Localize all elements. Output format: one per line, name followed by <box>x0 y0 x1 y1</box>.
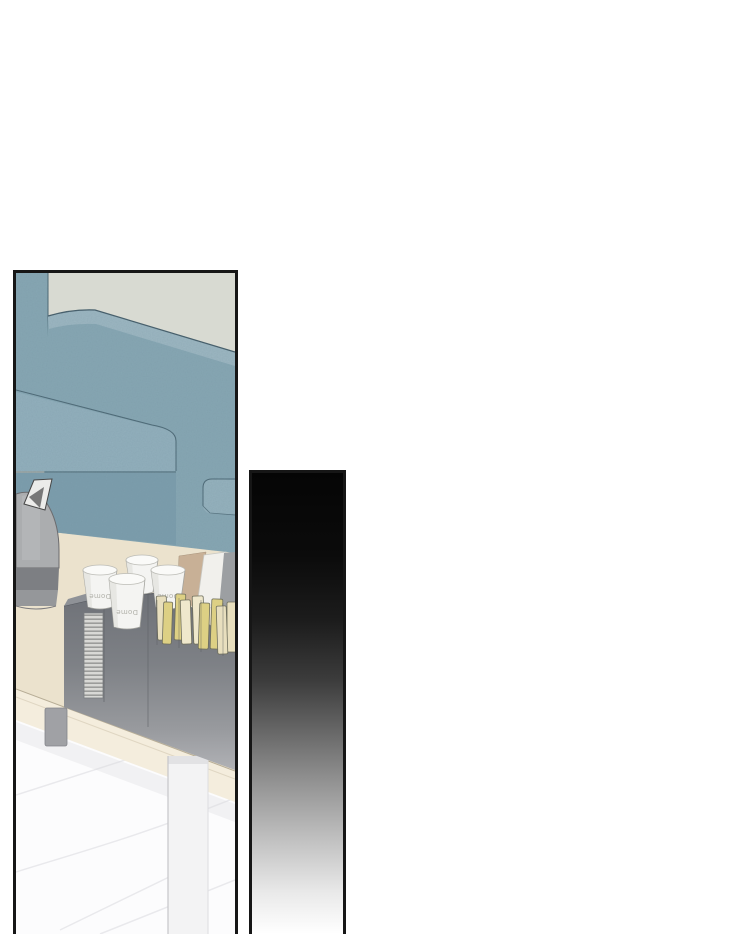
sofa-back-post <box>16 273 48 413</box>
cup-brand-text: Dome <box>116 608 138 616</box>
sugar-packet <box>198 603 210 649</box>
table-leg-back <box>45 708 67 746</box>
table-leg-face <box>168 756 208 934</box>
table-leg-front <box>168 756 208 934</box>
sugar-packet <box>216 606 228 654</box>
kettle-foot <box>16 590 58 606</box>
sugar-packet <box>162 602 172 644</box>
comic-page: Dome Dome Dome <box>0 0 740 934</box>
illustration-panel: Dome Dome Dome <box>13 270 238 934</box>
cup-top <box>109 574 145 585</box>
cup-brand-text: Dome <box>89 592 111 600</box>
cup-top <box>126 555 158 565</box>
scene-illustration: Dome Dome Dome <box>16 273 235 934</box>
paper-cup: Dome <box>109 574 145 630</box>
cup-top <box>83 565 117 575</box>
kettle-band <box>16 568 59 590</box>
cup-top <box>151 565 185 575</box>
sugar-packet <box>180 600 192 644</box>
sugar-packet <box>227 602 235 652</box>
gradient-panel <box>249 470 346 934</box>
sofa-armrest-top <box>203 479 235 514</box>
cup-sleeve-stack <box>84 613 103 698</box>
